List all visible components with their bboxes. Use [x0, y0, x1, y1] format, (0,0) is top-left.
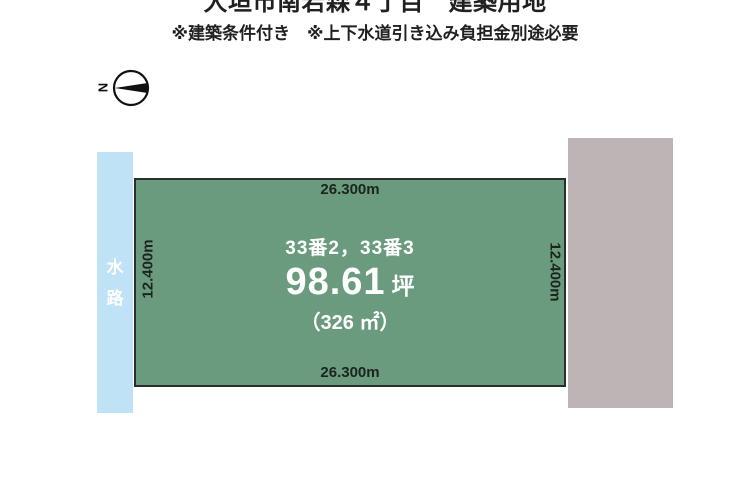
- land-plot: 26.300m 26.300m 12.400m 12.400m 33番2，33番…: [134, 178, 566, 387]
- page-title: 大垣市南若森４丁目 建築用地: [0, 0, 750, 15]
- plot-center-info: 33番2，33番3 98.61坪 （326 ㎡）: [136, 237, 564, 335]
- waterway-label-char-2: 路: [107, 290, 124, 307]
- page-subtitle: ※建築条件付き ※上下水道引き込み負担金別途必要: [0, 25, 750, 44]
- area-tsubo-value: 98.61: [285, 261, 385, 303]
- dimension-bottom: 26.300m: [136, 364, 564, 381]
- area-tsubo-unit: 坪: [392, 273, 415, 299]
- area-sqm: （326 ㎡）: [136, 311, 564, 335]
- adjacent-building-block: [568, 138, 673, 408]
- compass-north-label: N: [97, 81, 110, 95]
- area-tsubo-line: 98.61坪: [136, 261, 564, 311]
- land-plot-diagram: 大垣市南若森４丁目 建築用地 ※建築条件付き ※上下水道引き込み負担金別途必要 …: [0, 0, 750, 480]
- compass-icon: [112, 69, 150, 107]
- waterway-label-char-1: 水: [107, 259, 124, 276]
- lot-numbers: 33番2，33番3: [136, 237, 564, 261]
- dimension-top: 26.300m: [136, 181, 564, 198]
- waterway-strip: 水 路: [97, 152, 133, 413]
